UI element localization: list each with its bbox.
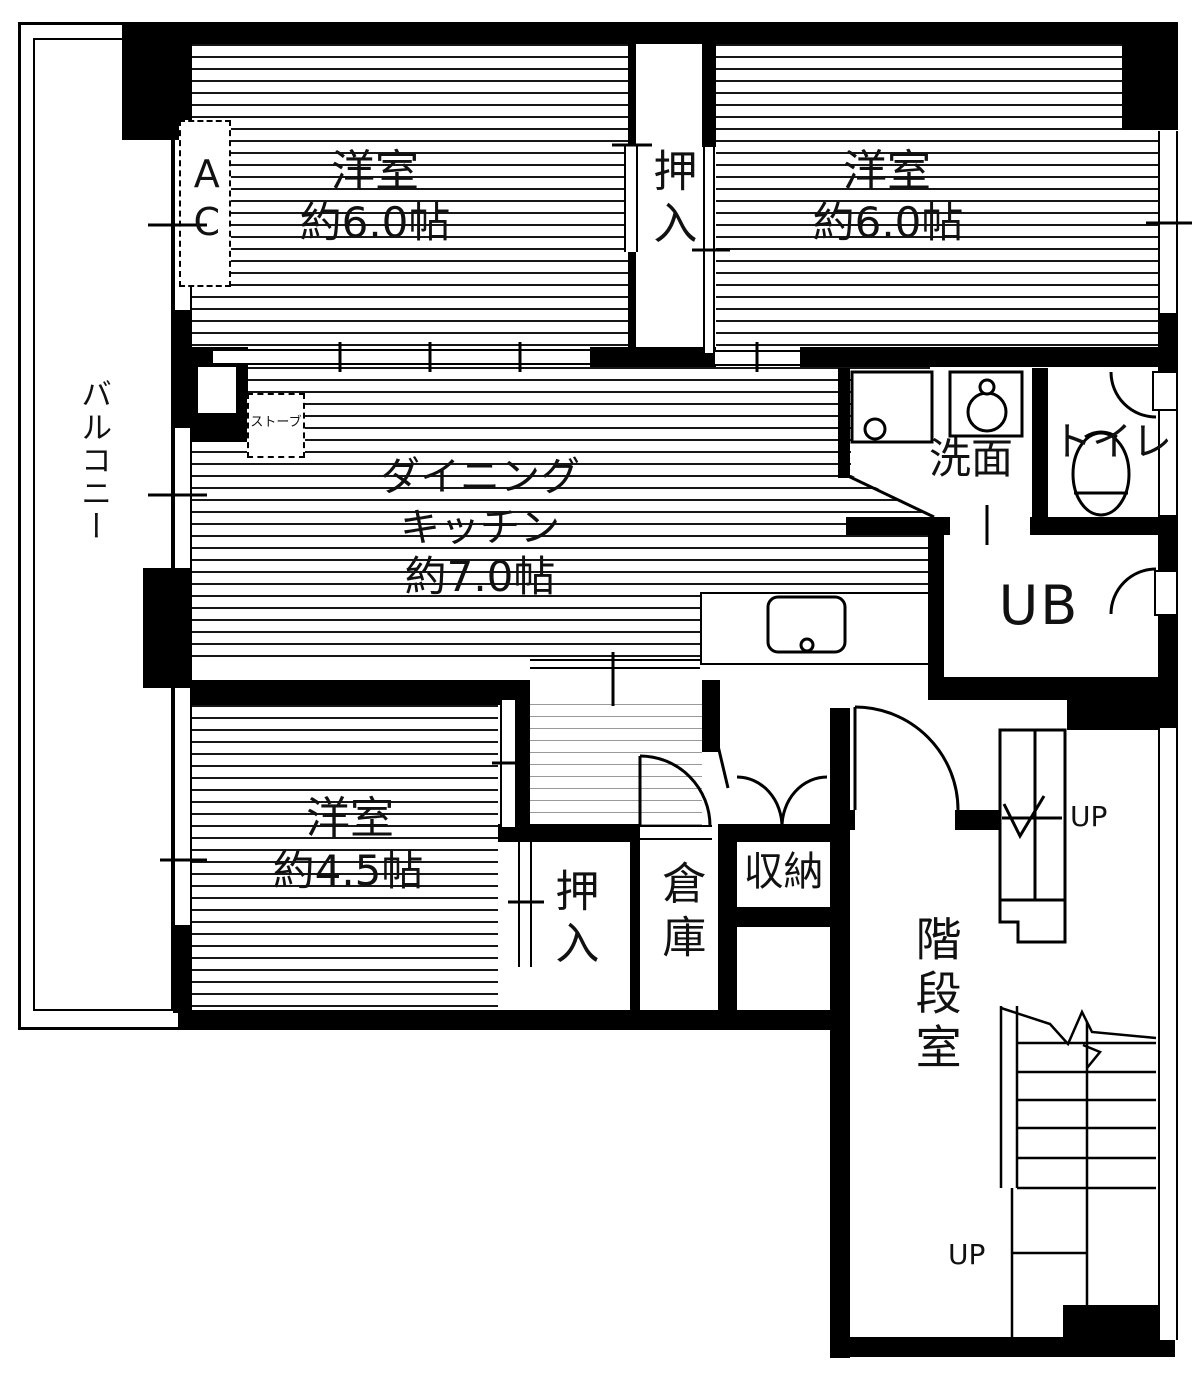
stairs-break-flag xyxy=(1083,1045,1100,1068)
floor-plan: バルコニー 洋室 約6.0帖 押入 洋室 約6.0帖 ダイニング キッチン 約7… xyxy=(0,0,1200,1376)
closet-bottom-label: 押入 xyxy=(548,868,596,972)
air-conditioner-label: AC xyxy=(185,152,227,248)
toilet-door-arc xyxy=(1111,372,1156,417)
entrance-door-arc xyxy=(855,707,958,810)
ub-door-arc xyxy=(1111,569,1156,614)
washroom-label: 洗面 xyxy=(916,436,1026,482)
toilet-door-jamb xyxy=(1152,371,1178,411)
stairwell-label: 階段室 xyxy=(910,915,961,1077)
storage-label: 倉庫 xyxy=(655,860,703,968)
ub-door-jamb xyxy=(1154,570,1178,616)
bedroom-nw-size: 約6.0帖 xyxy=(295,200,455,246)
toilet-label: トイレ xyxy=(1048,420,1176,464)
bedroom-ne-name: 洋室 xyxy=(832,148,942,196)
plan-graphics xyxy=(0,0,1200,1376)
dining-kitchen-name-1: ダイニング xyxy=(380,455,580,499)
storage-door-arc xyxy=(640,756,710,826)
bedroom-nw-name: 洋室 xyxy=(320,148,430,196)
kitchen-faucet-icon xyxy=(801,639,813,651)
washing-machine-drain-icon xyxy=(865,419,885,439)
wash-basin-bowl-icon xyxy=(968,393,1006,431)
unit-bath-label: UB xyxy=(996,576,1082,635)
dining-kitchen-name-2: キッチン xyxy=(380,506,580,550)
stairs-break-line xyxy=(1001,1008,1156,1044)
cabinet-door-arc-left xyxy=(737,777,782,827)
cabinet-label: 収納 xyxy=(737,850,830,894)
stairs-up-label-top: UP xyxy=(1070,802,1107,833)
stove-label: ストーブ xyxy=(248,416,304,430)
bedroom-ne-size: 約6.0帖 xyxy=(808,200,968,246)
bedroom-sw-size: 約4.5帖 xyxy=(268,848,428,894)
corridor-door-leaf-diagonal xyxy=(706,695,728,788)
cabinet-door-arc-right xyxy=(782,777,827,827)
balcony-label: バルコニー xyxy=(76,378,110,543)
stairs-up-label-bottom: UP xyxy=(948,1240,985,1271)
bedroom-sw-name: 洋室 xyxy=(295,795,405,843)
stairs-upper-step xyxy=(1000,900,1065,942)
dining-kitchen-size: 約7.0帖 xyxy=(380,554,580,600)
wash-basin-faucet-icon xyxy=(980,380,994,394)
closet-top-label: 押入 xyxy=(646,148,694,252)
